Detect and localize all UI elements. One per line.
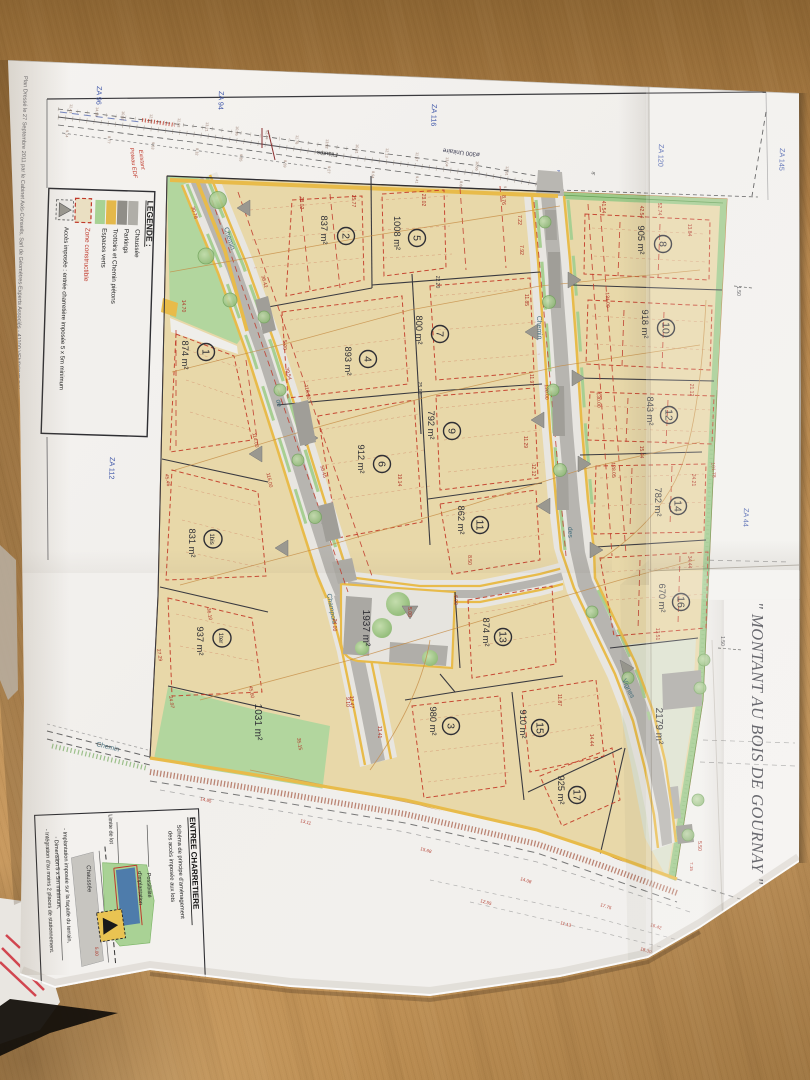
- svg-text:874 m²: 874 m²: [481, 618, 491, 647]
- svg-text:Parkings: Parkings: [122, 229, 130, 254]
- svg-text:120.00: 120.00: [543, 384, 550, 400]
- svg-text:Chemin: Chemin: [535, 316, 543, 340]
- svg-text:LEGENDE :: LEGENDE :: [144, 200, 155, 247]
- svg-text:937 m²: 937 m²: [195, 627, 205, 656]
- svg-text:8.59: 8.59: [282, 160, 287, 168]
- svg-text:862 m²: 862 m²: [456, 506, 466, 535]
- svg-text:837 m²: 837 m²: [319, 216, 329, 245]
- svg-text:11.85: 11.85: [523, 294, 529, 306]
- svg-text:13: 13: [497, 631, 509, 643]
- svg-text:9.63: 9.63: [150, 142, 155, 150]
- svg-text:11.97: 11.97: [528, 374, 534, 386]
- svg-text:7.92: 7.92: [518, 245, 524, 255]
- svg-text:11.08: 11.08: [176, 118, 181, 127]
- svg-text:14.70: 14.70: [180, 300, 186, 313]
- svg-text:ZA 94: ZA 94: [216, 91, 226, 110]
- svg-text:13.41: 13.41: [376, 726, 382, 739]
- svg-text:11: 11: [474, 520, 486, 531]
- svg-text:7: 7: [434, 331, 446, 337]
- svg-text:ZA 112: ZA 112: [107, 457, 117, 480]
- svg-text:130.00: 130.00: [595, 392, 602, 408]
- svg-text:25.77: 25.77: [350, 195, 356, 208]
- svg-text:874 m²: 874 m²: [180, 341, 190, 370]
- svg-text:22.20: 22.20: [434, 276, 440, 289]
- svg-text:7.22: 7.22: [516, 215, 522, 225]
- svg-text:41.54: 41.54: [600, 201, 606, 214]
- svg-text:Chaussée: Chaussée: [133, 229, 141, 258]
- svg-text:925 m²: 925 m²: [556, 776, 566, 805]
- svg-text:11.76: 11.76: [294, 135, 299, 144]
- svg-text:13.21: 13.21: [204, 122, 209, 132]
- svg-text:5.00: 5.00: [406, 607, 412, 617]
- svg-text:13.04: 13.04: [444, 157, 449, 167]
- svg-text:10.62: 10.62: [120, 111, 125, 121]
- svg-text:Chaussée: Chaussée: [85, 865, 92, 893]
- svg-text:5: 5: [411, 235, 423, 241]
- svg-text:ZA 96: ZA 96: [94, 86, 104, 105]
- svg-text:1: 1: [200, 349, 212, 355]
- svg-text:4: 4: [362, 356, 374, 362]
- svg-text:8.77: 8.77: [106, 136, 111, 144]
- svg-text:12.91: 12.91: [504, 166, 509, 176]
- svg-text:19.14: 19.14: [396, 474, 402, 487]
- svg-text:Possibilité: Possibilité: [145, 873, 152, 898]
- svg-text:9.27: 9.27: [326, 166, 331, 174]
- svg-text:24.00: 24.00: [331, 619, 337, 632]
- svg-text:792 m²: 792 m²: [426, 411, 436, 440]
- svg-text:Limite de lot: Limite de lot: [107, 814, 114, 844]
- svg-text:12.12: 12.12: [530, 464, 536, 477]
- svg-text:800 m²: 800 m²: [414, 316, 424, 345]
- svg-text:13.52: 13.52: [324, 139, 329, 149]
- svg-text:1008 m²: 1008 m²: [392, 216, 402, 250]
- svg-text:9.10: 9.10: [344, 697, 350, 707]
- svg-text:980 m²: 980 m²: [428, 707, 438, 736]
- svg-text:5.00: 5.00: [281, 340, 287, 350]
- svg-text:14.19: 14.19: [94, 107, 99, 117]
- svg-text:8.32: 8.32: [194, 148, 199, 156]
- svg-text:23.02: 23.02: [420, 194, 426, 207]
- svg-text:912 m²: 912 m²: [356, 445, 366, 474]
- svg-text:3: 3: [445, 723, 457, 729]
- svg-text:12.44: 12.44: [264, 130, 269, 140]
- svg-text:14.44: 14.44: [588, 734, 594, 747]
- svg-text:5.00: 5.00: [94, 947, 99, 957]
- svg-text:6.00: 6.00: [452, 595, 458, 605]
- svg-text:1031 m²: 1031 m²: [252, 704, 263, 741]
- svg-text:9: 9: [446, 428, 458, 434]
- svg-text:9.41: 9.41: [414, 176, 419, 184]
- svg-text:12.57: 12.57: [148, 114, 153, 124]
- svg-text:Espaces verts: Espaces verts: [99, 228, 107, 268]
- svg-text:9.85: 9.85: [238, 154, 243, 162]
- svg-text:8.76: 8.76: [500, 195, 506, 205]
- svg-text:128.05: 128.05: [610, 462, 617, 478]
- svg-text:15: 15: [534, 722, 546, 734]
- svg-text:des: des: [566, 527, 573, 539]
- svg-text:10.66: 10.66: [474, 161, 479, 171]
- svg-text:10.81: 10.81: [354, 144, 359, 154]
- svg-text:10.95: 10.95: [234, 126, 239, 136]
- svg-text:28.02: 28.02: [298, 197, 304, 210]
- svg-text:6: 6: [376, 461, 388, 467]
- svg-text:131.00: 131.00: [604, 292, 611, 308]
- svg-text:1bis: 1bis: [208, 533, 215, 544]
- svg-text:12.13: 12.13: [384, 148, 389, 158]
- svg-text:2: 2: [340, 233, 352, 239]
- svg-text:893 m²: 893 m²: [343, 347, 353, 376]
- svg-text:11.29: 11.29: [522, 436, 528, 448]
- svg-text:1937 m²: 1937 m²: [360, 610, 371, 647]
- svg-text:11.87: 11.87: [556, 694, 562, 706]
- svg-text:25.00: 25.00: [416, 382, 422, 395]
- svg-text:17: 17: [571, 789, 583, 801]
- svg-text:ZA 116: ZA 116: [429, 104, 439, 127]
- svg-text:11.57: 11.57: [414, 152, 419, 161]
- svg-text:910 m²: 910 m²: [518, 710, 528, 739]
- svg-text:1ter: 1ter: [217, 633, 224, 644]
